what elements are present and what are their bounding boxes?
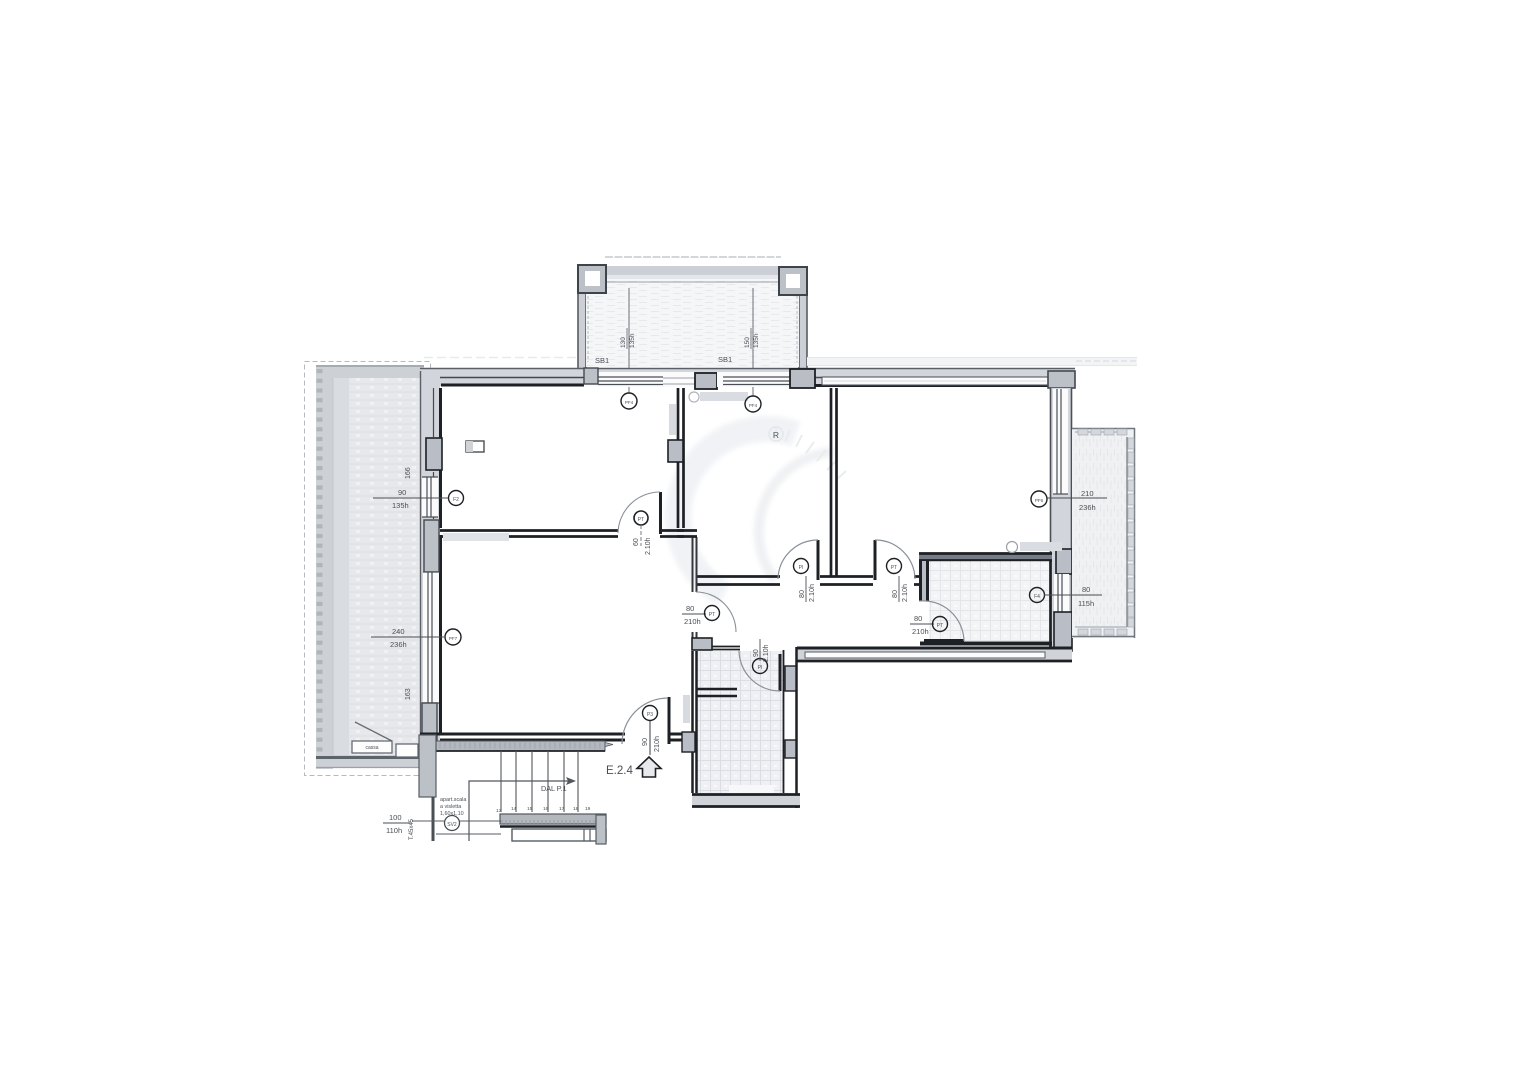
svg-text:115h: 115h [1078, 599, 1094, 608]
svg-text:236h: 236h [390, 640, 407, 649]
svg-text:210h: 210h [912, 627, 929, 636]
svg-text:PF4: PF4 [749, 403, 758, 408]
svg-text:2.10h: 2.10h [763, 644, 770, 662]
svg-text:17: 17 [559, 806, 565, 812]
svg-text:PF6: PF6 [1035, 498, 1044, 503]
svg-text:90: 90 [398, 488, 406, 497]
svg-text:110h: 110h [386, 826, 402, 835]
svg-text:135h: 135h [392, 501, 409, 510]
svg-text:PT: PT [937, 623, 943, 629]
svg-text:SV2: SV2 [447, 822, 457, 828]
svg-text:P3: P3 [647, 712, 653, 718]
svg-text:SB1: SB1 [718, 355, 732, 364]
svg-text:210h: 210h [684, 617, 701, 626]
svg-text:F4: F4 [1034, 594, 1040, 600]
svg-text:PT: PT [891, 565, 897, 571]
svg-text:15: 15 [527, 806, 533, 812]
svg-text:150: 150 [744, 337, 751, 348]
svg-text:a visletta: a visletta [440, 804, 461, 810]
svg-text:236h: 236h [1079, 503, 1096, 512]
svg-text:2.10h: 2.10h [645, 537, 652, 555]
svg-text:90: 90 [640, 738, 649, 746]
svg-text:PI: PI [758, 665, 763, 671]
svg-text:135h: 135h [629, 333, 636, 348]
svg-text:2.10h: 2.10h [900, 584, 909, 602]
svg-text:T.45x45: T.45x45 [409, 818, 415, 840]
svg-text:SB1: SB1 [595, 356, 609, 365]
svg-text:E.2.4: E.2.4 [606, 765, 633, 777]
svg-text:80: 80 [890, 590, 899, 598]
svg-text:18: 18 [573, 806, 579, 812]
svg-text:PT: PT [709, 612, 715, 618]
svg-text:80: 80 [686, 604, 694, 613]
svg-text:80: 80 [914, 614, 922, 623]
svg-text:2.10h: 2.10h [807, 584, 816, 602]
svg-text:R: R [773, 430, 779, 440]
svg-text:100: 100 [389, 813, 402, 822]
svg-text:166: 166 [405, 467, 412, 479]
svg-text:60: 60 [633, 538, 640, 546]
svg-text:13: 13 [496, 808, 502, 814]
svg-text:F2: F2 [453, 497, 459, 503]
svg-text:19: 19 [585, 806, 591, 812]
svg-text:cassa: cassa [365, 745, 378, 751]
svg-text:PF7: PF7 [449, 636, 458, 641]
svg-text:210h: 210h [652, 736, 661, 752]
svg-text:DAL P.1: DAL P.1 [541, 784, 567, 793]
svg-text:135h: 135h [753, 333, 760, 348]
svg-text:163: 163 [405, 688, 412, 700]
svg-text:80: 80 [1082, 585, 1090, 594]
svg-text:14: 14 [511, 806, 517, 812]
svg-text:240: 240 [392, 627, 405, 636]
svg-text:80: 80 [797, 590, 806, 598]
svg-text:PF4: PF4 [625, 400, 634, 405]
svg-text:PI: PI [799, 565, 804, 571]
svg-text:210: 210 [1081, 489, 1094, 498]
svg-text:16: 16 [543, 806, 549, 812]
svg-text:130: 130 [620, 337, 627, 348]
svg-text:PT: PT [638, 517, 644, 523]
svg-text:90: 90 [753, 649, 760, 657]
svg-text:apart.scala: apart.scala [440, 797, 466, 803]
